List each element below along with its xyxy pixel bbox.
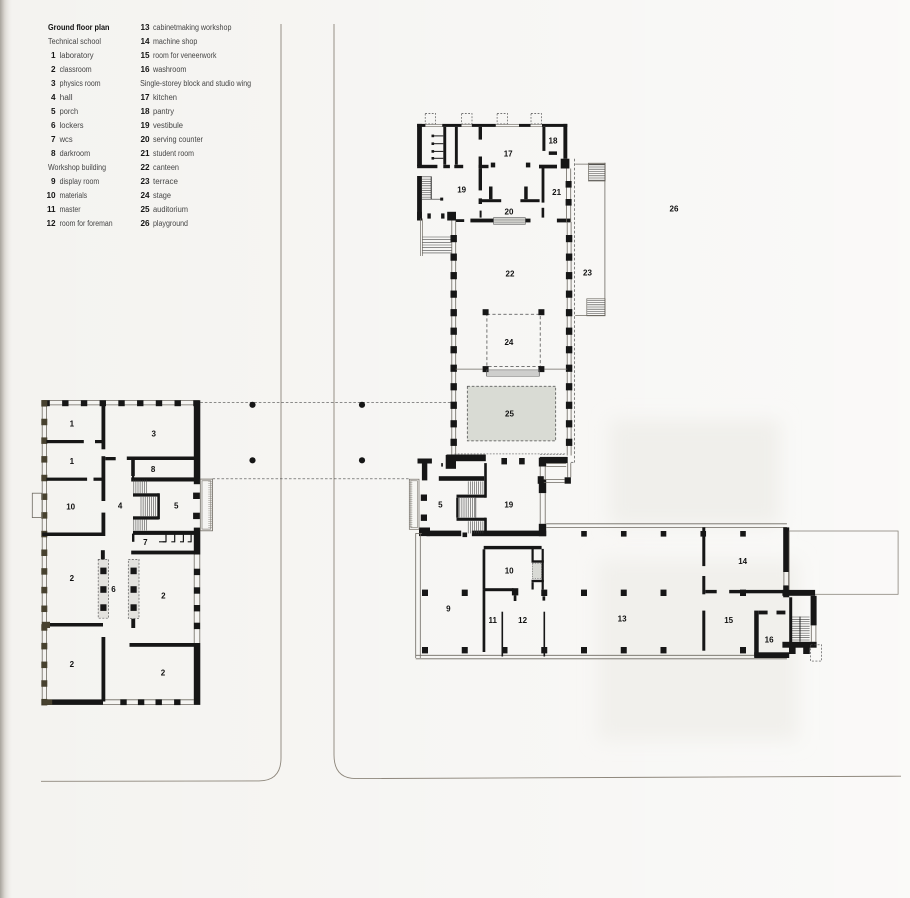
svg-text:26: 26 (140, 219, 150, 228)
svg-text:8: 8 (151, 465, 156, 474)
svg-text:3: 3 (151, 430, 156, 439)
svg-text:Single-storey block and studio: Single-storey block and studio wing (140, 79, 251, 88)
svg-text:15: 15 (140, 51, 150, 60)
svg-text:17: 17 (504, 149, 513, 158)
svg-text:lockers: lockers (60, 121, 84, 130)
svg-text:24: 24 (504, 338, 513, 347)
svg-text:9: 9 (446, 605, 451, 614)
svg-text:15: 15 (724, 616, 733, 625)
svg-text:canteen: canteen (153, 163, 179, 172)
svg-text:23: 23 (140, 177, 150, 186)
svg-text:stage: stage (153, 191, 171, 200)
svg-text:laboratory: laboratory (60, 51, 94, 60)
svg-text:25: 25 (140, 205, 150, 214)
svg-text:20: 20 (140, 135, 150, 144)
svg-text:2: 2 (70, 574, 75, 583)
svg-text:17: 17 (140, 93, 150, 102)
svg-text:terrace: terrace (153, 177, 179, 186)
svg-text:1: 1 (70, 420, 75, 429)
svg-text:18: 18 (140, 107, 150, 116)
svg-text:20: 20 (505, 208, 514, 217)
svg-text:22: 22 (506, 270, 515, 279)
svg-text:6: 6 (111, 585, 116, 594)
svg-text:wcs: wcs (59, 135, 73, 144)
svg-text:25: 25 (505, 410, 514, 419)
svg-text:darkroom: darkroom (60, 149, 91, 158)
svg-text:student room: student room (153, 149, 194, 158)
svg-text:2: 2 (161, 668, 166, 677)
svg-text:master: master (60, 205, 81, 214)
svg-text:washroom: washroom (152, 65, 187, 74)
svg-text:19: 19 (140, 121, 150, 130)
svg-text:6: 6 (51, 121, 56, 130)
svg-text:11: 11 (47, 205, 56, 214)
svg-text:11: 11 (488, 616, 497, 625)
svg-text:12: 12 (518, 616, 527, 625)
svg-text:auditorium: auditorium (153, 205, 188, 214)
svg-text:21: 21 (140, 149, 150, 158)
svg-text:10: 10 (46, 191, 56, 200)
svg-text:room for foreman: room for foreman (60, 219, 113, 228)
svg-text:5: 5 (438, 500, 443, 509)
svg-text:pantry: pantry (153, 107, 174, 116)
svg-text:3: 3 (51, 79, 56, 88)
svg-text:7: 7 (143, 538, 148, 547)
svg-text:19: 19 (504, 500, 513, 509)
svg-text:hall: hall (60, 93, 73, 102)
svg-text:8: 8 (51, 149, 56, 158)
svg-text:physics room: physics room (60, 79, 101, 88)
svg-text:serving counter: serving counter (153, 135, 203, 144)
svg-text:2: 2 (70, 660, 75, 669)
svg-text:4: 4 (51, 93, 56, 102)
svg-text:Workshop building: Workshop building (48, 163, 106, 172)
svg-text:5: 5 (51, 107, 56, 116)
svg-text:2: 2 (51, 65, 56, 74)
svg-text:26: 26 (670, 205, 679, 214)
svg-text:21: 21 (552, 188, 561, 197)
svg-text:materials: materials (60, 191, 88, 200)
svg-text:10: 10 (66, 503, 75, 512)
svg-text:24: 24 (140, 191, 150, 200)
svg-text:14: 14 (738, 557, 747, 566)
svg-text:playground: playground (153, 219, 188, 228)
svg-text:16: 16 (140, 65, 150, 74)
svg-text:19: 19 (457, 186, 466, 195)
svg-text:13: 13 (140, 23, 150, 32)
svg-text:Technical school: Technical school (48, 37, 101, 46)
svg-text:18: 18 (549, 137, 558, 146)
svg-text:12: 12 (46, 219, 56, 228)
svg-text:display room: display room (60, 177, 100, 186)
svg-text:Ground floor plan: Ground floor plan (48, 22, 110, 32)
svg-text:1: 1 (51, 51, 56, 60)
svg-text:9: 9 (51, 177, 56, 186)
svg-text:14: 14 (140, 37, 150, 46)
svg-text:23: 23 (583, 269, 592, 278)
svg-text:2: 2 (161, 592, 166, 601)
svg-text:16: 16 (765, 635, 774, 644)
svg-text:4: 4 (118, 502, 123, 511)
svg-text:13: 13 (618, 615, 627, 624)
svg-text:7: 7 (51, 135, 56, 144)
svg-text:classroom: classroom (60, 65, 92, 74)
svg-text:room for veneerwork: room for veneerwork (153, 51, 217, 60)
svg-text:22: 22 (140, 163, 150, 172)
svg-text:vestibule: vestibule (153, 121, 184, 130)
svg-text:5: 5 (174, 502, 179, 511)
svg-text:cabinetmaking workshop: cabinetmaking workshop (153, 23, 232, 32)
svg-text:porch: porch (60, 107, 79, 116)
svg-text:1: 1 (70, 457, 75, 466)
svg-text:kitchen: kitchen (153, 93, 177, 102)
svg-text:machine shop: machine shop (153, 37, 198, 46)
svg-text:10: 10 (505, 566, 514, 575)
